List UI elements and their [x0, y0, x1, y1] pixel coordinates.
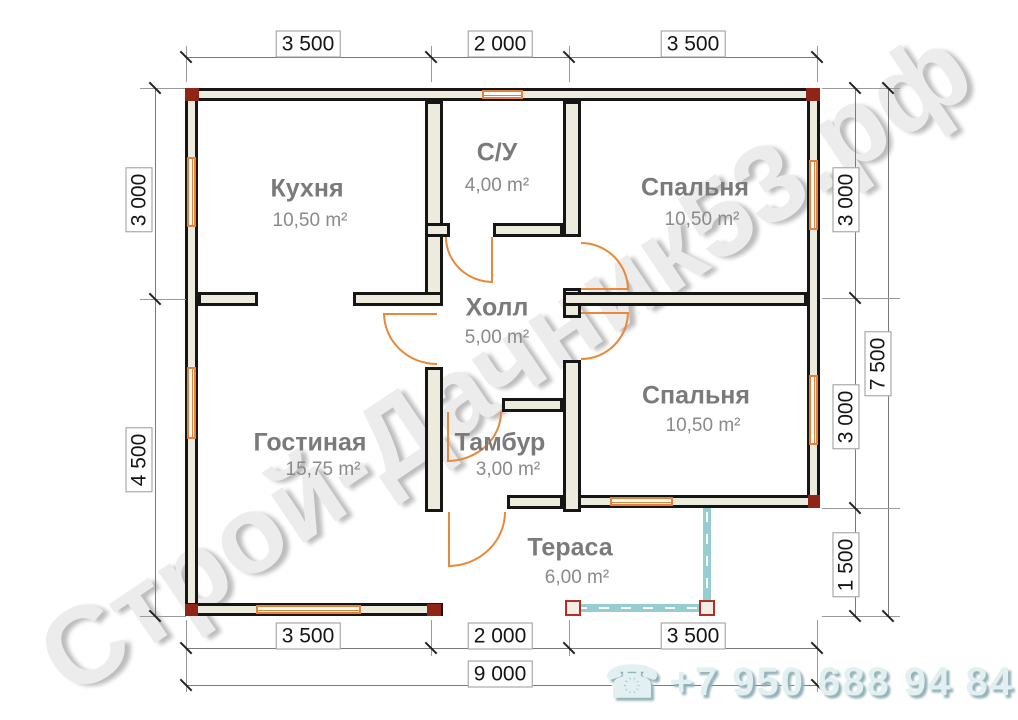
extension-line: [186, 46, 187, 82]
dim-label-right-3: 1 500: [833, 533, 860, 598]
phone-number: ☎ +7 950 688 94 84: [605, 660, 1014, 705]
extension-line: [140, 88, 186, 89]
window-bottom-living: [256, 605, 361, 614]
extension-line: [140, 299, 186, 300]
room-name-bathroom: С/У: [477, 139, 518, 168]
interior-wall-bedroom-divider: [563, 292, 807, 306]
door-arc-bathroom: [445, 237, 493, 283]
dim-label-right-1: 3 000: [833, 168, 860, 233]
window-right-bedroom1: [809, 160, 818, 230]
room-area-vestibule: 3,00 m²: [476, 459, 540, 481]
dim-label-right-total: 7 500: [865, 332, 892, 397]
corner-marker-bedroom2: [808, 495, 820, 508]
door-arc-vestibule-terrace: [448, 512, 506, 567]
extension-line: [431, 46, 432, 82]
room-area-bedroom1: 10,50 m²: [665, 209, 740, 231]
room-name-living: Гостиная: [254, 429, 367, 458]
room-area-living: 15,75 m²: [286, 459, 361, 481]
dim-label-top-1: 3 500: [276, 31, 341, 58]
room-name-bedroom1: Спальня: [641, 174, 749, 203]
room-name-hall: Холл: [466, 294, 529, 323]
extension-line: [569, 46, 570, 82]
terrace-edge-bottom: [573, 604, 707, 612]
window-top-bath: [482, 90, 523, 99]
telephone-icon: ☎: [605, 663, 660, 703]
corner-marker-bottom-left: [185, 604, 198, 616]
window-right-bedroom2: [809, 375, 818, 445]
interior-wall-vestibule-left: [425, 367, 443, 512]
extension-line: [822, 508, 900, 509]
bedroom2-bottom-wall: [563, 495, 820, 508]
corner-marker-top-right: [806, 88, 820, 101]
window-left-kitchen: [187, 157, 196, 227]
interior-wall-bath-right: [563, 101, 581, 237]
room-name-terrace: Тераса: [527, 534, 612, 563]
watermark: Строй-Дачник53.рф: [16, 3, 995, 720]
room-name-bedroom2: Спальня: [642, 382, 750, 411]
interior-wall-kitchen-right: [425, 101, 443, 306]
window-left-living: [187, 367, 196, 439]
interior-wall-kitchen-living-right: [353, 292, 443, 306]
dim-label-bottom-2: 2 000: [468, 623, 533, 650]
terrace-edge-right: [703, 508, 711, 604]
corner-marker-top-left: [185, 88, 199, 101]
window-bottom-bedroom2: [610, 497, 673, 506]
extension-line: [817, 46, 818, 82]
floor-plan-canvas: Строй-Дачник53.рф: [0, 0, 1018, 720]
room-name-vestibule: Тамбур: [455, 429, 546, 458]
door-arc-hall-living: [383, 313, 437, 365]
interior-wall-bath-bottom: [493, 223, 563, 237]
dim-label-bottom-1: 3 500: [276, 623, 341, 650]
dim-label-left-2: 4 500: [126, 428, 153, 493]
room-area-terrace: 6,00 m²: [545, 567, 609, 589]
extension-line: [186, 620, 187, 692]
dim-label-bottom-total: 9 000: [468, 661, 533, 688]
interior-wall-bath-stub: [425, 223, 450, 237]
room-name-kitchen: Кухня: [270, 175, 343, 204]
extension-line: [822, 298, 900, 299]
interior-wall-kitchen-living-left: [198, 292, 258, 306]
phone-number-text: +7 950 688 94 84: [669, 660, 1014, 705]
interior-wall-vestibule-top: [502, 398, 563, 412]
interior-wall-vestibule-bottom: [507, 495, 563, 509]
exterior-wall-right: [807, 88, 820, 508]
dim-label-bottom-3: 3 500: [661, 623, 726, 650]
room-area-bathroom: 4,00 m²: [465, 175, 529, 197]
terrace-post-left: [565, 600, 581, 616]
room-area-kitchen: 10,50 m²: [273, 210, 348, 232]
terrace-post-right: [699, 600, 715, 616]
extension-line: [140, 616, 186, 617]
dim-label-left-1: 3 000: [126, 168, 153, 233]
dim-label-top-2: 2 000: [468, 31, 533, 58]
dim-label-right-2: 3 000: [833, 385, 860, 450]
room-area-bedroom2: 10,50 m²: [666, 415, 741, 437]
interior-wall-bedroom2-left: [563, 360, 581, 512]
corner-marker-bottom-mid: [427, 604, 441, 616]
dimension-line-left: [155, 88, 156, 616]
dim-label-top-3: 3 500: [661, 31, 726, 58]
room-area-hall: 5,00 m²: [465, 327, 529, 349]
